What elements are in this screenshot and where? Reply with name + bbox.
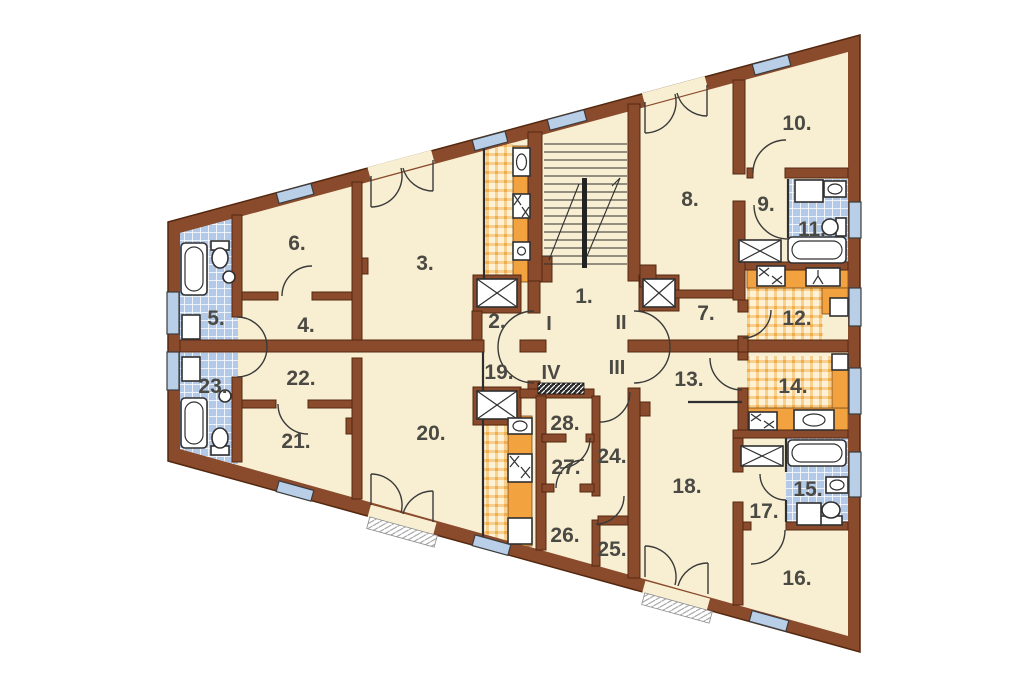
toilet-icon xyxy=(211,428,229,455)
window-icon xyxy=(167,352,179,390)
sink-icon xyxy=(223,271,235,283)
room-label-3: 3. xyxy=(416,252,434,275)
room-label-9: 9. xyxy=(757,193,775,216)
stove-icon xyxy=(749,412,777,430)
room-label-15: 15. xyxy=(793,478,822,501)
stove-icon xyxy=(757,266,785,286)
room-label-22: 22. xyxy=(286,367,315,390)
kitchen-19-tiles xyxy=(484,414,510,546)
room-label-12: 12. xyxy=(782,307,811,330)
kitchen-14-counter-side xyxy=(832,370,848,408)
refrigerator-icon xyxy=(830,298,848,316)
room-label-1: 1. xyxy=(575,285,593,308)
stove-icon xyxy=(508,454,532,482)
room-label-5: 5. xyxy=(207,307,225,330)
washer-icon xyxy=(513,242,530,260)
duct-icon xyxy=(739,240,781,262)
room-label-16: 16. xyxy=(782,567,811,590)
toilet-icon xyxy=(820,502,842,525)
wardrobe-icon xyxy=(538,383,584,394)
window-icon xyxy=(849,368,861,414)
bathtub-icon xyxy=(181,243,207,295)
room-label-24: 24. xyxy=(597,445,626,468)
refrigerator-icon xyxy=(508,518,532,544)
room-label-6: 6. xyxy=(288,232,306,255)
window-icon xyxy=(849,202,861,238)
floor-plan-page: 1. 2. 3. 4. 5. 6. 7. 8. 9. 10. 11. 12. 1… xyxy=(0,0,1024,682)
bathtub-icon xyxy=(181,398,207,448)
window-icon xyxy=(849,288,861,326)
sink-icon xyxy=(508,418,532,434)
sink-icon xyxy=(826,477,848,493)
room-label-2: 2. xyxy=(488,310,506,333)
room-label-20: 20. xyxy=(416,422,445,445)
room-label-13: 13. xyxy=(674,368,703,391)
floor-plan-svg: 1. 2. 3. 4. 5. 6. 7. 8. 9. 10. 11. 12. 1… xyxy=(0,0,1024,682)
elevator-shaft-icon xyxy=(477,391,517,419)
stove-icon xyxy=(513,194,530,218)
hall-label-IV: IV xyxy=(542,362,562,384)
room-label-18: 18. xyxy=(672,475,701,498)
room-label-7: 7. xyxy=(697,302,715,325)
sink-icon xyxy=(182,357,200,381)
sink-icon xyxy=(806,268,840,286)
sink-icon xyxy=(794,410,834,430)
room-label-4: 4. xyxy=(297,314,315,337)
refrigerator-icon xyxy=(832,354,848,370)
room-label-25: 25. xyxy=(597,538,626,561)
hall-label-I: I xyxy=(546,313,552,335)
room-label-17: 17. xyxy=(749,500,778,523)
room-label-27: 27. xyxy=(551,456,580,479)
toilet-icon xyxy=(211,241,229,268)
room-label-28: 28. xyxy=(550,412,579,435)
bathtub-icon xyxy=(788,440,846,466)
hall-label-II: II xyxy=(615,312,626,334)
sink-icon xyxy=(513,148,530,176)
sink-icon xyxy=(182,315,200,339)
room-label-10: 10. xyxy=(782,112,811,135)
sink-icon xyxy=(824,181,846,197)
room-label-14: 14. xyxy=(778,375,807,398)
window-icon xyxy=(167,292,179,334)
duct-icon xyxy=(741,446,783,466)
room-label-21: 21. xyxy=(281,430,310,453)
kitchen-2-tiles xyxy=(484,138,513,282)
room-label-11: 11. xyxy=(798,218,826,241)
elevator-shaft-icon xyxy=(477,279,517,307)
room-label-8: 8. xyxy=(681,188,699,211)
window-icon xyxy=(849,452,861,497)
room-label-23: 23. xyxy=(198,375,227,398)
room-label-19: 19. xyxy=(484,361,513,384)
washer-icon xyxy=(795,180,823,202)
room-label-26: 26. xyxy=(550,524,579,547)
hall-label-III: III xyxy=(609,357,626,379)
elevator-shaft-icon xyxy=(643,279,675,307)
washer-icon xyxy=(797,503,821,525)
